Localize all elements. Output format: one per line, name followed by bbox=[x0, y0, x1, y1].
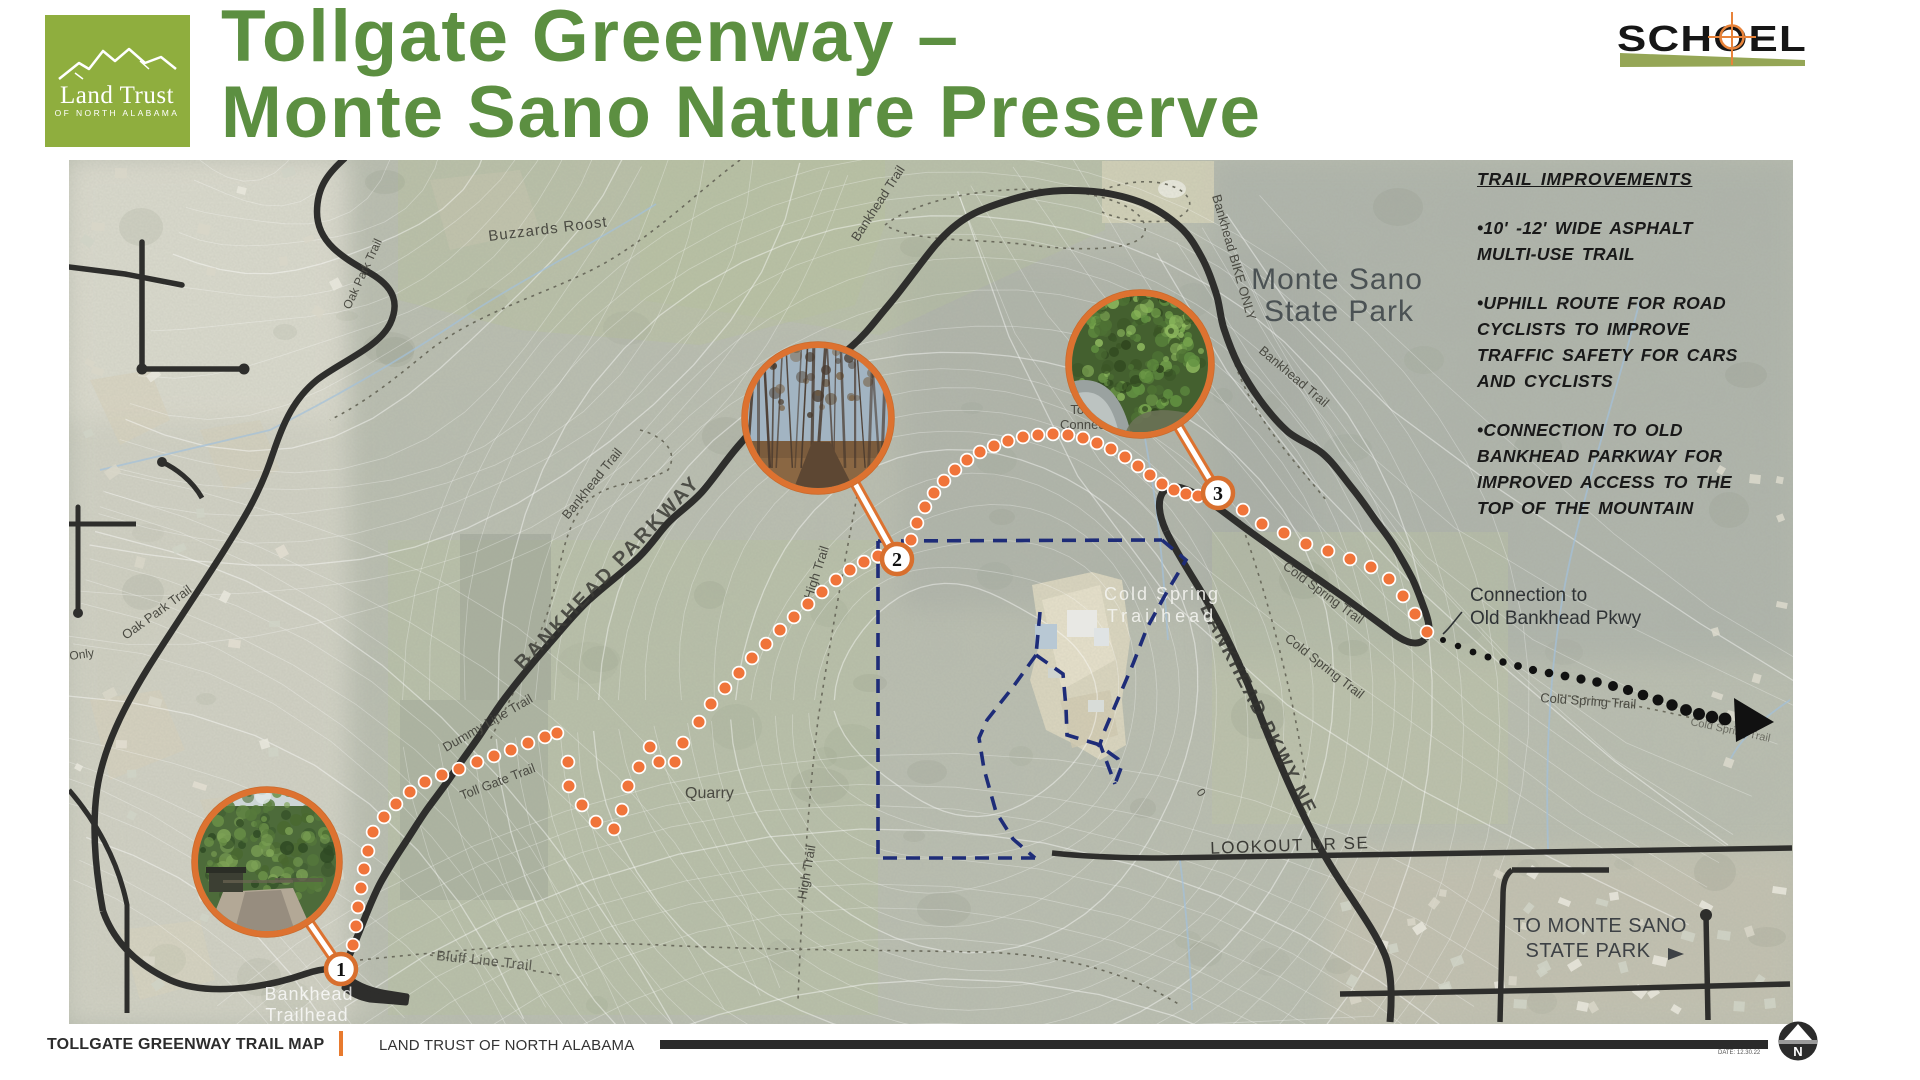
svg-text:Connection to: Connection to bbox=[1470, 585, 1587, 606]
svg-text:1: 1 bbox=[336, 959, 346, 981]
svg-text:SCHOEL: SCHOEL bbox=[1617, 18, 1807, 59]
svg-text:Monte Sano: Monte Sano bbox=[1251, 263, 1423, 296]
svg-text:Land Trust: Land Trust bbox=[60, 82, 174, 109]
svg-text:STATE PARK: STATE PARK bbox=[1525, 940, 1650, 962]
svg-text:3: 3 bbox=[1213, 483, 1223, 505]
svg-text:Old Bankhead Pkwy: Old Bankhead Pkwy bbox=[1470, 608, 1642, 629]
svg-text:Quarry: Quarry bbox=[685, 785, 734, 802]
svg-text:State Park: State Park bbox=[1264, 295, 1414, 328]
svg-text:N: N bbox=[1793, 1044, 1802, 1059]
svg-text:Trailhead: Trailhead bbox=[265, 1005, 348, 1024]
svg-text:2: 2 bbox=[892, 549, 902, 571]
svg-text:Bankhead: Bankhead bbox=[264, 984, 353, 1004]
svg-text:Trailhead: Trailhead bbox=[1107, 606, 1217, 626]
svg-text:OF NORTH ALABAMA: OF NORTH ALABAMA bbox=[55, 108, 180, 118]
svg-text:TO MONTE SANO: TO MONTE SANO bbox=[1513, 915, 1687, 937]
